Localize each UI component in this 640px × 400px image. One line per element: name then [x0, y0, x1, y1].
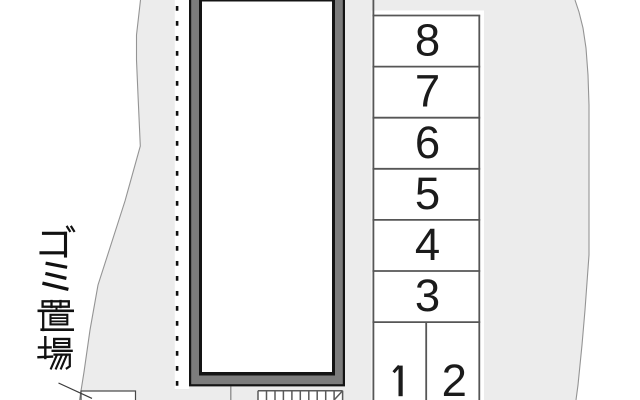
svg-text:2: 2	[442, 355, 467, 400]
svg-text:3: 3	[415, 270, 440, 321]
svg-text:7: 7	[415, 66, 440, 117]
svg-text:5: 5	[415, 168, 440, 219]
svg-text:4: 4	[415, 219, 440, 270]
svg-text:8: 8	[415, 15, 440, 66]
svg-text:6: 6	[415, 117, 440, 168]
